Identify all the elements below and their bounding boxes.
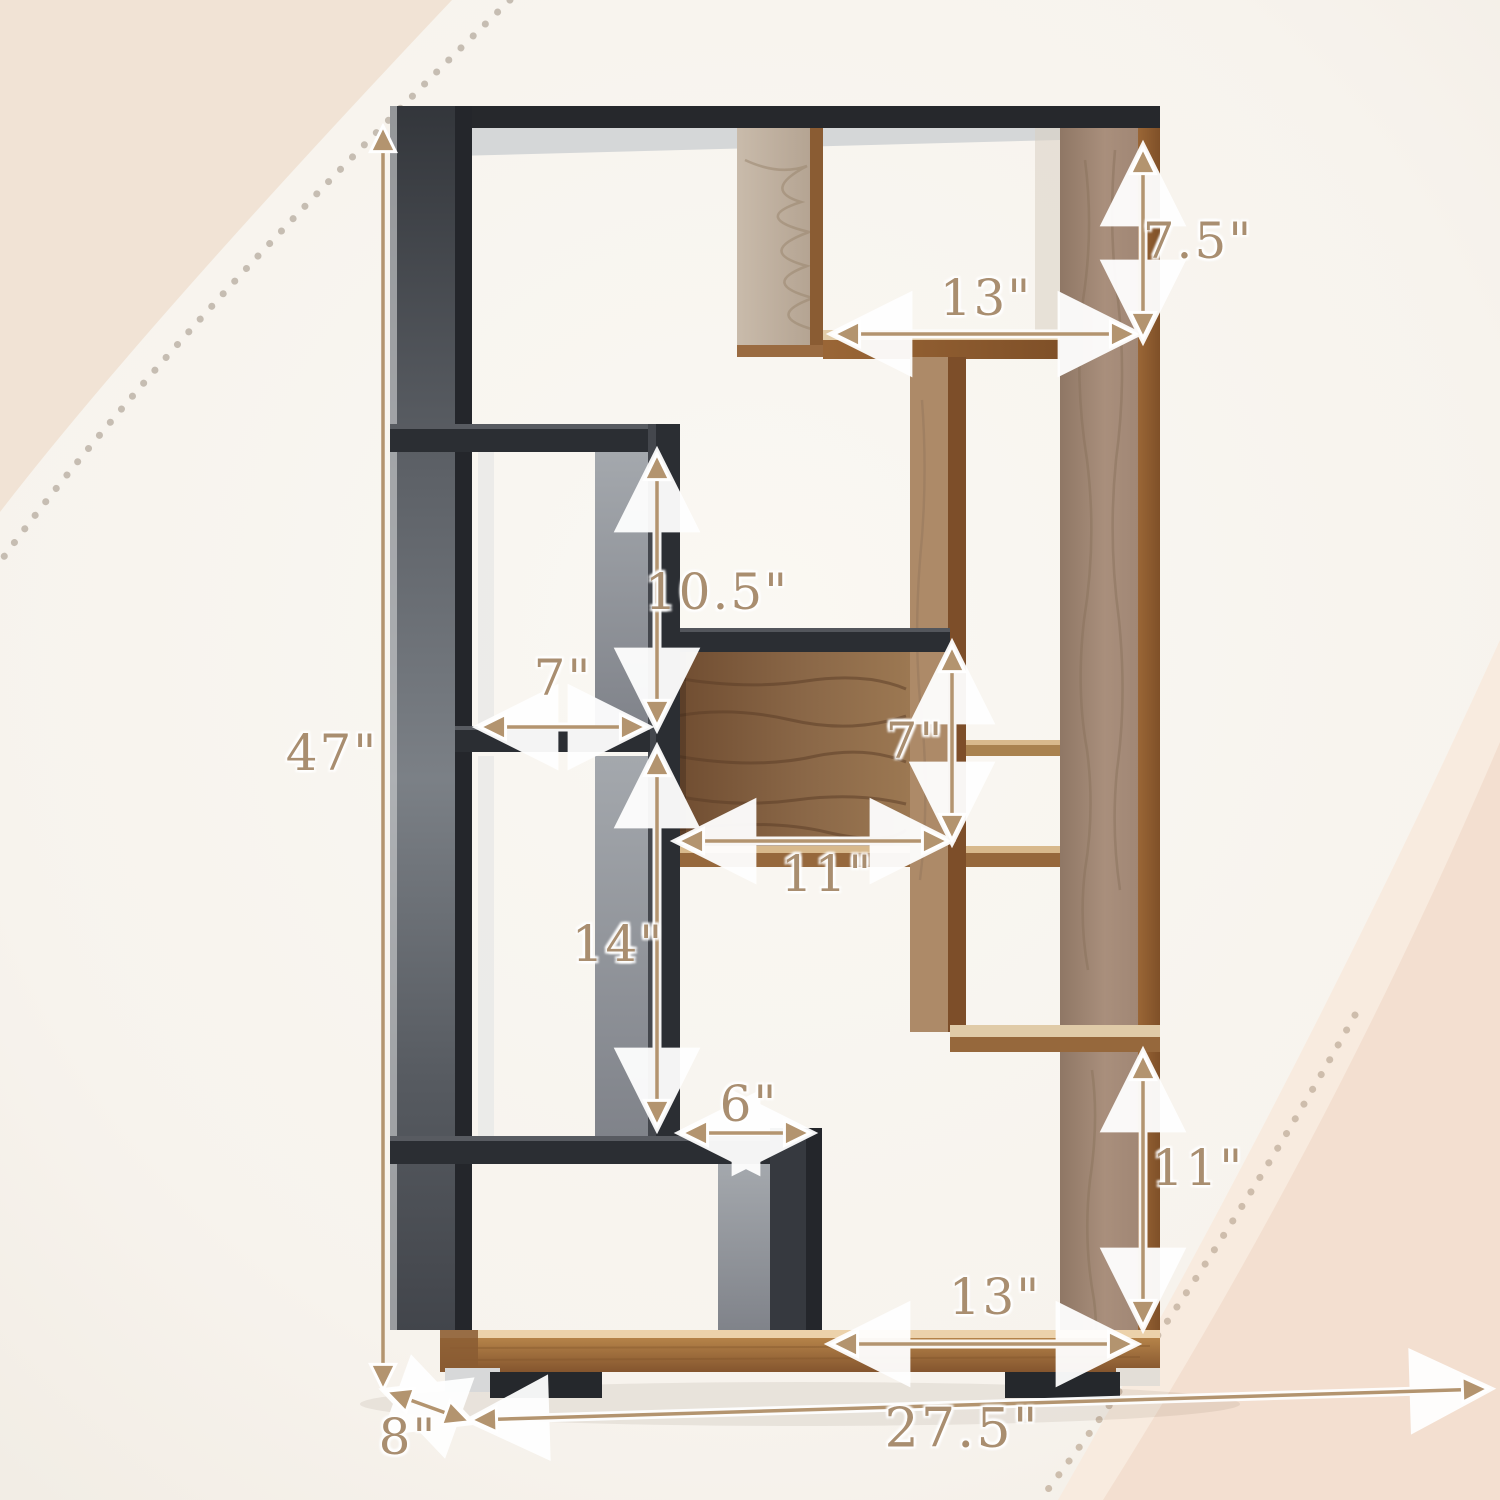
dimension-label-upper-left-width: 7" — [534, 649, 593, 707]
dimension-label-lower-right-height: 11" — [1152, 1139, 1245, 1197]
panel-rim — [737, 345, 823, 357]
shelf-front-edge — [966, 745, 1060, 756]
cubby-wall-light — [1035, 128, 1060, 330]
product-dimension-diagram: 47" 7.5" 13" 10.5" 7" 7" 11" 14" 6" 11" … — [0, 0, 1500, 1500]
foot-left — [490, 1372, 602, 1398]
cubby-wall — [718, 1164, 770, 1330]
dimension-label-top-cubby-width: 13" — [940, 269, 1033, 327]
cubby-wall-light — [478, 452, 494, 730]
plinth-right — [1116, 1368, 1160, 1386]
base-top-edge — [440, 1330, 1160, 1338]
dimension-label-upper-left-height: 10.5" — [645, 563, 789, 621]
dimension-label-center-width: 11" — [781, 845, 874, 903]
top-beam — [390, 106, 1160, 128]
dimension-label-bottom-opening: 13" — [949, 1268, 1042, 1326]
foot-right — [1005, 1372, 1120, 1398]
step-shelf-top — [950, 1025, 1160, 1037]
dimension-label-overall-depth: 8" — [379, 1408, 438, 1466]
bottom-divider-edge — [806, 1128, 822, 1330]
shelf-front-edge — [823, 340, 1060, 359]
dimension-label-top-cubby-height: 7.5" — [1143, 212, 1254, 270]
panel-edge — [810, 126, 823, 357]
shelf-highlight — [680, 628, 950, 632]
step-shelf-edge — [950, 1037, 1160, 1052]
base-left-corner — [440, 1330, 478, 1372]
shelf-highlight — [390, 424, 680, 429]
dimension-label-lower-left-height: 14" — [572, 915, 665, 973]
dimension-label-overall-height: 47" — [286, 724, 379, 782]
cubby-wall — [595, 452, 648, 730]
dimension-label-overall-width: 27.5" — [884, 1397, 1039, 1460]
bookshelf-illustration — [0, 0, 1500, 1500]
cubby-wall-light — [478, 756, 494, 1136]
shelf-top-face — [966, 740, 1060, 745]
dimension-label-bottom-gap-width: 6" — [720, 1075, 779, 1133]
dimension-label-center-height: 7" — [886, 712, 945, 770]
